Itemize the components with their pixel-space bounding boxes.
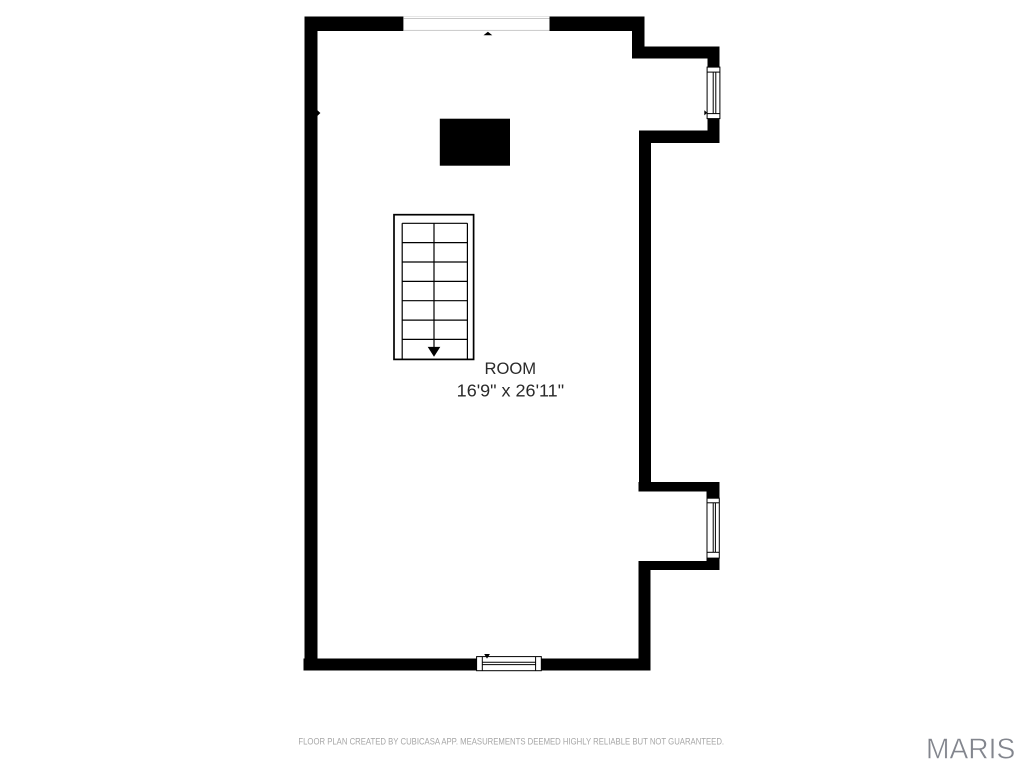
svg-text:16'9" x 26'11": 16'9" x 26'11"	[457, 381, 564, 401]
svg-text:MARIS: MARIS	[926, 734, 1015, 766]
svg-text:ROOM: ROOM	[485, 359, 537, 378]
svg-text:FLOOR PLAN CREATED BY CUBICASA: FLOOR PLAN CREATED BY CUBICASA APP. MEAS…	[298, 737, 724, 747]
